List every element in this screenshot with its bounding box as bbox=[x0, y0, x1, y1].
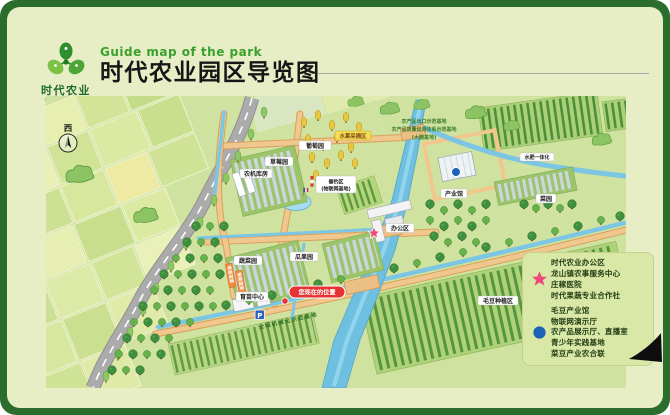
legend-item: 庄稼医院 bbox=[551, 280, 620, 291]
label-machinery-warehouse: 农机库房 bbox=[240, 169, 272, 178]
label-vegetable-garden: 蔬菜园 bbox=[234, 256, 262, 265]
subtitle-en: Guide map of the park bbox=[100, 45, 321, 59]
parking-sign: P bbox=[255, 310, 265, 320]
svg-text:农产品质量追溯体系示范基地: 农产品质量追溯体系示范基地 bbox=[390, 126, 456, 133]
label-strawberry-garden: 草莓园 bbox=[265, 157, 293, 166]
corner-wedge bbox=[614, 332, 664, 364]
label-office-area: 办公区 bbox=[386, 224, 414, 233]
label-seedling-center: 育苗中心 bbox=[236, 292, 268, 301]
svg-text:草莓园: 草莓园 bbox=[270, 158, 288, 166]
compass-west-label: 西 bbox=[64, 124, 73, 134]
svg-text:毛豆种植区: 毛豆种植区 bbox=[483, 297, 513, 305]
label-industry-hall: 产业馆 bbox=[441, 189, 467, 198]
blue-dot-marker bbox=[452, 168, 461, 177]
svg-text:蔬菜园: 蔬菜园 bbox=[239, 257, 257, 265]
page-title: 时代农业园区导览图 bbox=[100, 60, 321, 86]
legend-star-list: 时代农业办公区 龙山镇农事服务中心 庄稼医院 时代果蔬专业合作社 bbox=[551, 258, 620, 302]
label-fishing-area: 垂钓区 (物联网基地) bbox=[316, 176, 356, 193]
svg-text:水肥一体化: 水肥一体化 bbox=[523, 154, 549, 161]
svg-text:瓜果园: 瓜果园 bbox=[295, 253, 313, 261]
legend-item: 时代果蔬专业合作社 bbox=[551, 291, 620, 302]
park-map: 西 bbox=[46, 96, 626, 392]
svg-text:P: P bbox=[257, 312, 262, 320]
brand-logo-icon bbox=[43, 41, 89, 81]
label-fruit-picking-area: 水果采摘区 bbox=[335, 131, 371, 140]
legend-item: 时代农业办公区 bbox=[551, 258, 620, 269]
header-titles: Guide map of the park 时代农业园区导览图 bbox=[100, 45, 321, 86]
label-grape-garden: 葡萄园 bbox=[299, 141, 331, 150]
label-soybean-area: 毛豆种植区 bbox=[478, 296, 518, 305]
label-vegetable-plot: 菜园 bbox=[536, 194, 556, 203]
legend-dot-icon bbox=[527, 324, 551, 341]
windmill-icon bbox=[311, 176, 314, 187]
svg-text:(大棚基地): (大棚基地) bbox=[412, 134, 437, 141]
label-water-fertilizer: 水肥一体化 bbox=[520, 153, 554, 161]
svg-text:葡萄园: 葡萄园 bbox=[305, 142, 324, 150]
legend-item: 龙山镇农事服务中心 bbox=[551, 269, 620, 280]
svg-text:办公区: 办公区 bbox=[391, 224, 409, 232]
legend-item: 物联网演示厅 bbox=[551, 317, 628, 328]
svg-text:水果采摘区: 水果采摘区 bbox=[340, 132, 368, 140]
svg-text:您现在的位置: 您现在的位置 bbox=[298, 289, 335, 297]
svg-text:产业馆: 产业馆 bbox=[445, 190, 463, 198]
legend-item: 毛豆产业馆 bbox=[551, 306, 628, 317]
poster-sheet: 时代农业 TIME AGRICULTURE Guide map of the p… bbox=[7, 7, 663, 408]
svg-text:农机库房: 农机库房 bbox=[243, 170, 268, 178]
label-melon-garden: 瓜果园 bbox=[290, 252, 318, 261]
title-rule bbox=[318, 73, 649, 74]
legend-star-group: 时代农业办公区 龙山镇农事服务中心 庄稼医院 时代果蔬专业合作社 bbox=[527, 258, 647, 302]
poster-frame: 时代农业 TIME AGRICULTURE Guide map of the p… bbox=[0, 0, 670, 415]
svg-text:垂钓区: 垂钓区 bbox=[328, 179, 343, 186]
svg-text:育苗中心: 育苗中心 bbox=[240, 293, 264, 301]
svg-text:农产品出口示范基地: 农产品出口示范基地 bbox=[400, 118, 446, 125]
brand-logo: 时代农业 TIME AGRICULTURE bbox=[38, 41, 94, 102]
legend-star-icon bbox=[527, 270, 551, 289]
svg-text:菜园: 菜园 bbox=[539, 195, 552, 203]
svg-text:(物联网基地): (物联网基地) bbox=[321, 186, 351, 193]
